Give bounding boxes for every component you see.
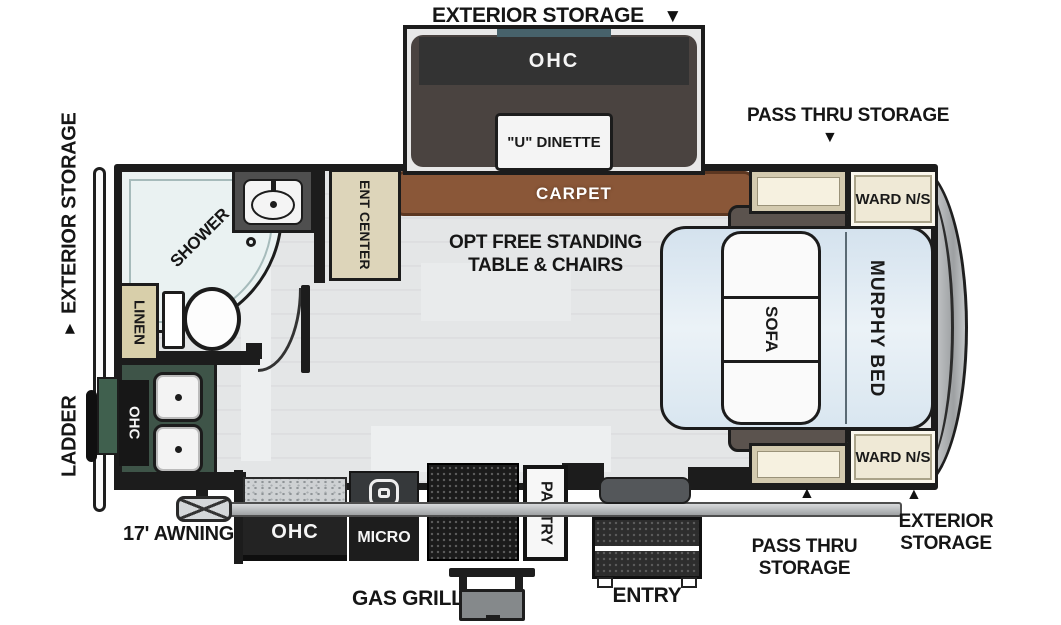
bathroom-door-leaf xyxy=(301,285,310,373)
slide-trim xyxy=(497,29,611,37)
entry-label: ENTRY xyxy=(592,584,702,608)
entry-steps xyxy=(592,517,702,579)
wardrobe-top: WARD N/S xyxy=(848,169,938,229)
kitchen-ohc-label: OHC xyxy=(126,406,143,439)
slide-ohc-cabinet: OHC xyxy=(419,37,689,85)
ward-bottom-label: WARD N/S xyxy=(856,449,931,466)
sink-drain-dot xyxy=(175,394,182,401)
u-dinette-table: "U" DINETTE xyxy=(495,113,613,171)
kitchen-ohc-cabinet: OHC xyxy=(119,380,149,466)
wall-segment xyxy=(688,467,754,487)
bath-sink-icon xyxy=(243,179,303,225)
exterior-storage-top-text: EXTERIOR STORAGE xyxy=(432,4,644,27)
gas-grill-label: GAS GRILL xyxy=(352,587,464,611)
grill-lid-icon xyxy=(449,568,535,577)
shower-drain-icon xyxy=(246,237,256,247)
bed-seam-line xyxy=(845,232,847,424)
carpet-area: CARPET xyxy=(394,171,754,216)
burner-center xyxy=(378,488,390,498)
arrow-down-icon: ▼ xyxy=(663,6,682,27)
bath-vanity xyxy=(232,169,314,233)
exterior-storage-left-label: ▼ EXTERIOR STORAGE xyxy=(54,112,86,340)
opt-table-line1: OPT FREE STANDING xyxy=(428,231,663,254)
sofa-label: SOFA xyxy=(758,264,784,394)
bath-drain-dot xyxy=(270,201,277,208)
exterior-storage-bottom-line2: STORAGE xyxy=(896,533,996,555)
pass-thru-top-label: PASS THRU STORAGE xyxy=(747,105,949,127)
toilet-tank xyxy=(162,291,185,349)
linen-cabinet: LINEN xyxy=(119,283,159,361)
grill-body-icon xyxy=(459,589,525,621)
ward-top-label: WARD N/S xyxy=(856,191,931,208)
awning-roller-end xyxy=(176,496,232,522)
pass-thru-compartment-bottom xyxy=(749,443,848,486)
step-edge xyxy=(595,546,699,551)
exterior-storage-bottom-line1: EXTERIOR xyxy=(896,511,996,533)
u-dinette-label: "U" DINETTE xyxy=(507,134,600,151)
floorplan-canvas: EXTERIOR STORAGE ▼ PASS THRU STORAGE ▼ ▼… xyxy=(0,0,1061,625)
bath-faucet-icon xyxy=(271,181,276,192)
ladder-grab-bar xyxy=(86,390,97,462)
kitchen-sink-bowl xyxy=(153,424,203,474)
ent-center-label: ENT CENTER xyxy=(357,180,373,269)
sofa: SOFA xyxy=(721,231,821,425)
kitchen-sink-bowl xyxy=(153,372,203,422)
arrow-right-icon: ▼ xyxy=(62,320,79,339)
carpet-label: CARPET xyxy=(536,184,612,204)
grill-notch xyxy=(486,615,500,621)
ladder-label: LADDER xyxy=(54,378,86,494)
linen-label: LINEN xyxy=(131,300,148,345)
slide-ohc-label: OHC xyxy=(529,50,579,73)
opt-table-line2: TABLE & CHAIRS xyxy=(428,254,663,277)
pass-thru-compartment-top xyxy=(749,169,848,214)
pass-thru-bottom-line2: STORAGE xyxy=(742,558,867,580)
awning-bar xyxy=(178,502,902,517)
sink-drain-dot xyxy=(175,446,182,453)
murphy-bed-label: MURPHY BED xyxy=(862,240,890,418)
awning-label: 17' AWNING xyxy=(123,523,234,546)
arrow-down-icon: ▼ xyxy=(822,130,838,146)
exterior-storage-bottom-label: EXTERIOR STORAGE xyxy=(896,511,996,555)
wardrobe-bottom: WARD N/S xyxy=(848,428,938,486)
wall-segment xyxy=(234,470,243,564)
arrow-up-icon: ▲ xyxy=(906,487,922,503)
compartment-door xyxy=(757,177,840,206)
utility-panel xyxy=(97,377,119,455)
arrow-up-icon: ▲ xyxy=(799,486,815,502)
pass-thru-bottom-label: PASS THRU STORAGE xyxy=(742,536,867,580)
compartment-door xyxy=(757,451,840,478)
wall-segment xyxy=(562,463,604,483)
entry-door xyxy=(599,477,691,504)
toilet-bowl xyxy=(183,287,241,351)
bathroom-wall-right xyxy=(314,169,325,283)
micro-label: MICRO xyxy=(357,529,410,547)
ent-center-cabinet: ENT CENTER xyxy=(329,169,401,281)
microwave: MICRO xyxy=(349,515,419,561)
dinette-slideout: OHC "U" DINETTE xyxy=(403,25,705,175)
lower-ohc-label: OHC xyxy=(271,521,318,544)
wall-segment xyxy=(114,472,246,490)
opt-table-label: OPT FREE STANDING TABLE & CHAIRS xyxy=(428,231,663,277)
pass-thru-bottom-line1: PASS THRU xyxy=(742,536,867,558)
exterior-storage-left-text: EXTERIOR STORAGE xyxy=(59,113,82,315)
